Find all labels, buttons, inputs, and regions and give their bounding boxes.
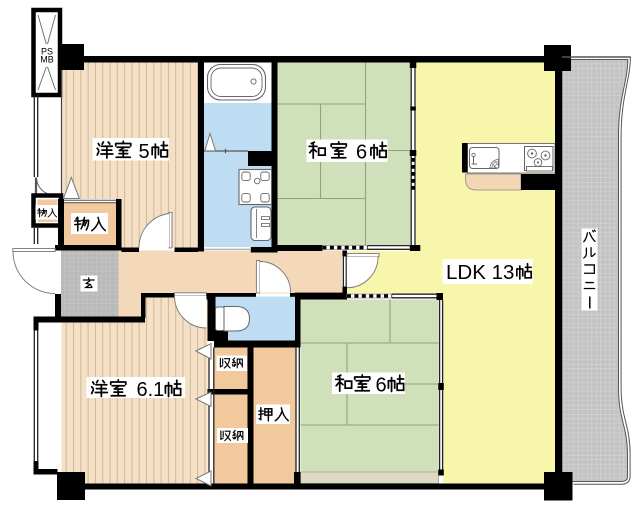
svg-text:LDK 13: LDK 13 xyxy=(446,261,514,284)
svg-text:6: 6 xyxy=(356,141,367,163)
svg-text:6.1: 6.1 xyxy=(137,379,165,401)
svg-text:5: 5 xyxy=(139,141,150,163)
svg-text:MB: MB xyxy=(40,55,54,65)
svg-text:6: 6 xyxy=(376,374,387,396)
